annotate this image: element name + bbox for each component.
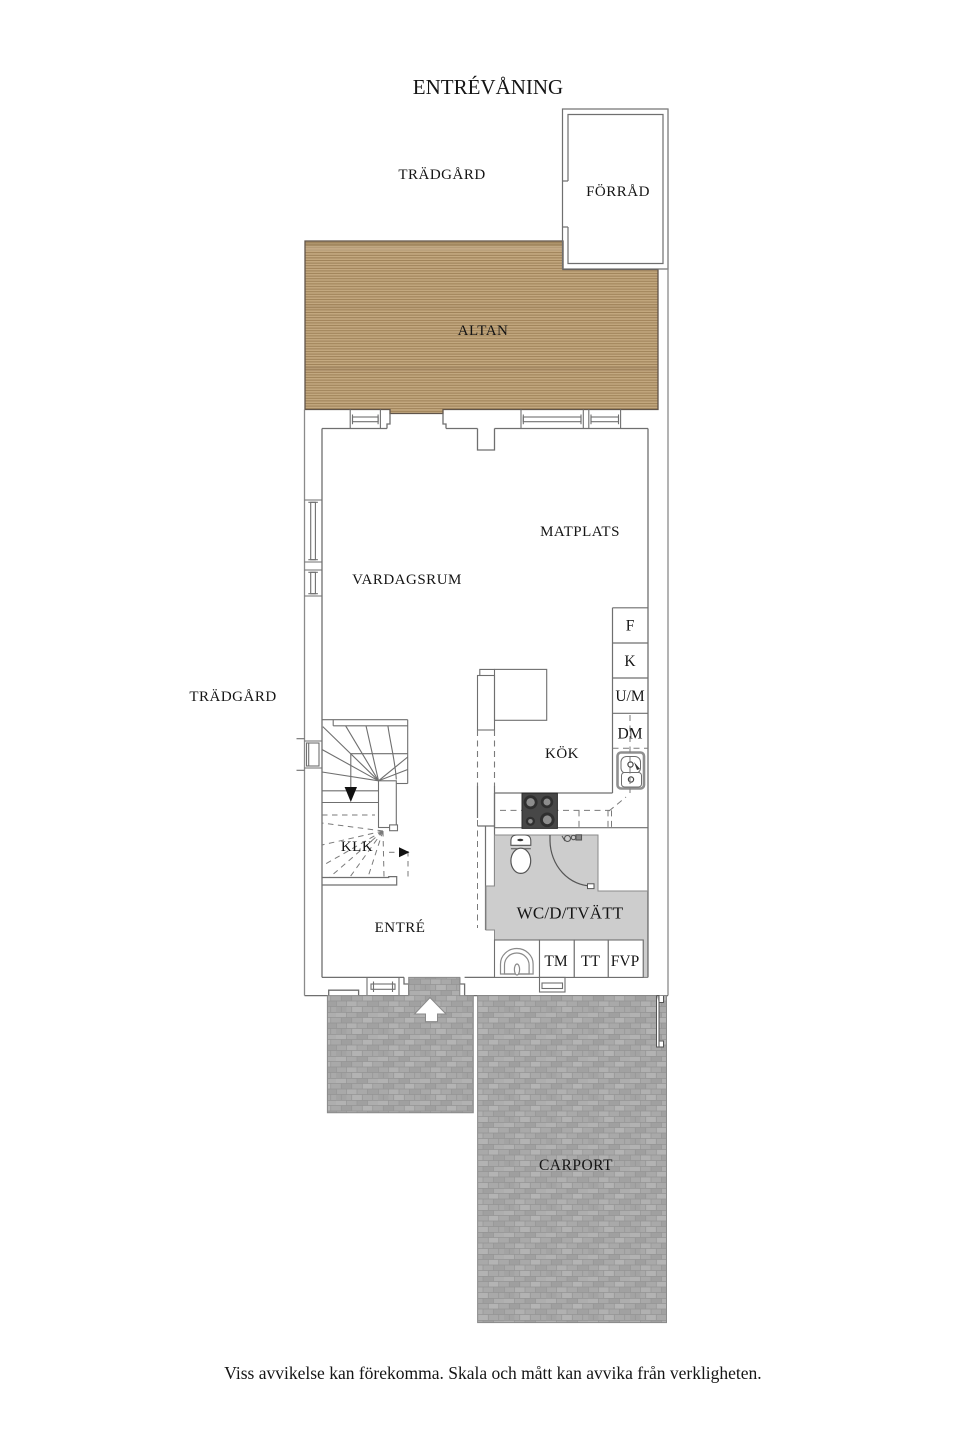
svg-text:U/M: U/M <box>615 688 645 705</box>
svg-text:TRÄDGÅRD: TRÄDGÅRD <box>189 688 276 705</box>
svg-text:Viss avvikelse kan förekomma.: Viss avvikelse kan förekomma. Skala och … <box>224 1363 761 1383</box>
svg-text:ALTAN: ALTAN <box>458 323 509 339</box>
svg-text:TRÄDGÅRD: TRÄDGÅRD <box>398 166 485 183</box>
svg-text:F: F <box>626 618 635 635</box>
svg-text:ENTRÉVÅNING: ENTRÉVÅNING <box>413 75 563 99</box>
svg-text:FVP: FVP <box>611 953 639 970</box>
svg-text:KLK: KLK <box>341 839 373 855</box>
svg-text:VARDAGSRUM: VARDAGSRUM <box>352 572 462 588</box>
svg-text:MATPLATS: MATPLATS <box>540 524 620 540</box>
svg-text:TM: TM <box>544 953 567 970</box>
svg-text:CARPORT: CARPORT <box>539 1157 613 1174</box>
svg-text:KÖK: KÖK <box>545 745 579 762</box>
svg-text:ENTRÉ: ENTRÉ <box>375 919 426 936</box>
svg-text:FÖRRÅD: FÖRRÅD <box>586 183 650 200</box>
svg-text:K: K <box>624 653 636 670</box>
svg-text:TT: TT <box>581 953 600 970</box>
svg-text:WC/D/TVÄTT: WC/D/TVÄTT <box>517 904 624 923</box>
